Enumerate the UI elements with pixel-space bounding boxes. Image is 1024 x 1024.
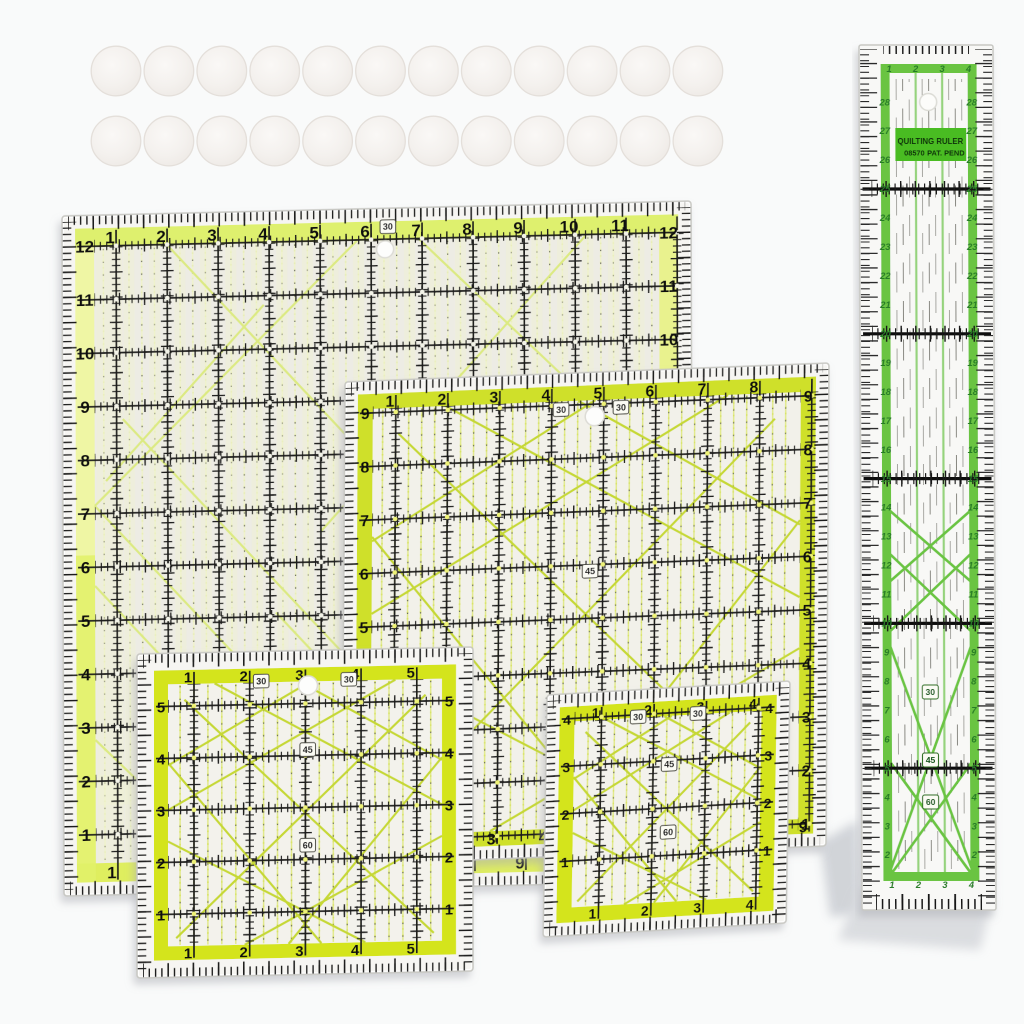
svg-text:4: 4	[541, 387, 550, 404]
svg-text:3: 3	[295, 943, 303, 960]
svg-text:11: 11	[611, 216, 629, 235]
svg-text:8: 8	[80, 451, 90, 470]
svg-text:2: 2	[641, 902, 649, 918]
svg-text:4: 4	[445, 745, 454, 762]
svg-text:30: 30	[925, 687, 935, 697]
svg-text:14: 14	[968, 503, 979, 514]
svg-text:25: 25	[879, 184, 891, 195]
svg-text:2: 2	[81, 772, 91, 791]
svg-text:28: 28	[878, 97, 890, 108]
svg-text:2: 2	[971, 850, 978, 861]
svg-text:60: 60	[663, 827, 673, 838]
svg-text:4: 4	[563, 712, 571, 728]
svg-text:8: 8	[803, 442, 812, 459]
svg-text:12: 12	[968, 561, 979, 572]
svg-text:4: 4	[351, 942, 360, 959]
svg-text:6: 6	[645, 383, 654, 400]
svg-text:16: 16	[881, 445, 892, 456]
svg-text:9: 9	[971, 648, 977, 659]
svg-text:2: 2	[562, 807, 570, 823]
svg-text:5: 5	[407, 665, 415, 682]
svg-text:20: 20	[966, 329, 978, 340]
svg-text:11: 11	[76, 291, 94, 310]
svg-text:18: 18	[880, 387, 891, 398]
svg-text:5: 5	[593, 385, 602, 402]
svg-text:12: 12	[881, 561, 892, 572]
svg-text:1: 1	[561, 854, 569, 870]
svg-text:45: 45	[664, 759, 674, 770]
svg-text:1: 1	[82, 826, 92, 845]
svg-text:26: 26	[966, 155, 978, 166]
svg-text:7: 7	[803, 496, 812, 513]
svg-text:9: 9	[804, 389, 813, 406]
svg-text:5: 5	[802, 603, 811, 620]
svg-text:18: 18	[967, 387, 978, 398]
svg-text:60: 60	[926, 797, 936, 807]
svg-text:12: 12	[659, 223, 678, 242]
svg-text:2: 2	[915, 880, 922, 891]
svg-text:PAT. PEND: PAT. PEND	[927, 149, 965, 158]
svg-text:17: 17	[968, 416, 979, 427]
svg-text:2: 2	[437, 391, 446, 408]
svg-text:4: 4	[970, 792, 977, 803]
svg-text:9: 9	[884, 648, 890, 659]
svg-text:22: 22	[879, 271, 891, 282]
svg-text:2: 2	[884, 850, 891, 861]
svg-text:7: 7	[360, 513, 369, 530]
svg-text:19: 19	[880, 358, 891, 369]
svg-text:4: 4	[765, 700, 773, 716]
svg-text:2: 2	[240, 944, 248, 961]
svg-text:10: 10	[881, 619, 892, 630]
svg-text:9: 9	[513, 219, 523, 238]
svg-text:27: 27	[965, 126, 977, 137]
svg-text:8: 8	[884, 677, 890, 688]
svg-text:2: 2	[157, 855, 165, 872]
svg-text:10: 10	[560, 217, 579, 236]
svg-text:1: 1	[592, 704, 600, 720]
svg-text:21: 21	[966, 300, 978, 311]
svg-text:30: 30	[693, 708, 703, 719]
svg-text:7: 7	[697, 381, 706, 398]
svg-text:5: 5	[157, 699, 165, 716]
svg-text:1: 1	[801, 817, 810, 834]
svg-text:8: 8	[749, 379, 758, 396]
svg-text:17: 17	[881, 416, 892, 427]
svg-text:6: 6	[971, 734, 977, 745]
svg-text:1: 1	[385, 393, 394, 410]
svg-text:22: 22	[966, 271, 978, 282]
svg-text:4: 4	[258, 225, 268, 244]
svg-text:9: 9	[80, 398, 90, 417]
svg-text:1: 1	[763, 842, 771, 858]
svg-text:60: 60	[303, 840, 313, 850]
svg-text:15: 15	[968, 474, 979, 485]
svg-text:4: 4	[968, 880, 975, 891]
svg-text:3: 3	[885, 821, 891, 832]
svg-text:3: 3	[207, 226, 217, 245]
svg-text:30: 30	[616, 402, 626, 412]
svg-text:15: 15	[881, 474, 892, 485]
svg-text:3: 3	[445, 797, 453, 814]
svg-text:5: 5	[309, 223, 319, 242]
svg-text:8: 8	[360, 460, 369, 477]
svg-text:23: 23	[966, 242, 978, 253]
svg-text:3: 3	[81, 719, 91, 738]
svg-text:7: 7	[884, 705, 890, 716]
svg-text:2: 2	[156, 227, 166, 246]
svg-text:7: 7	[411, 221, 421, 240]
svg-text:5: 5	[971, 763, 977, 774]
svg-text:1: 1	[107, 863, 117, 882]
svg-text:11: 11	[660, 277, 678, 296]
svg-text:1: 1	[105, 228, 115, 247]
svg-text:21: 21	[879, 300, 891, 311]
svg-text:5: 5	[445, 693, 453, 710]
svg-text:10: 10	[968, 619, 979, 630]
svg-text:25: 25	[966, 184, 978, 195]
svg-text:30: 30	[556, 405, 566, 415]
svg-text:5: 5	[884, 763, 890, 774]
svg-text:10: 10	[659, 330, 678, 349]
svg-text:4: 4	[802, 656, 811, 673]
svg-text:9: 9	[361, 406, 370, 423]
svg-text:7: 7	[971, 705, 977, 716]
svg-text:3: 3	[562, 759, 570, 775]
svg-text:20: 20	[879, 329, 891, 340]
svg-text:11: 11	[881, 590, 891, 601]
svg-text:14: 14	[881, 503, 892, 514]
svg-text:30: 30	[344, 674, 354, 684]
svg-text:3: 3	[157, 803, 165, 820]
svg-text:27: 27	[878, 126, 890, 137]
svg-text:3: 3	[693, 899, 701, 915]
svg-text:1: 1	[588, 905, 596, 921]
svg-text:QUILTING RULER: QUILTING RULER	[897, 137, 963, 146]
svg-text:08570: 08570	[904, 149, 925, 158]
svg-text:26: 26	[879, 155, 891, 166]
svg-text:3: 3	[939, 64, 945, 75]
svg-text:24: 24	[879, 213, 891, 224]
svg-text:3: 3	[972, 821, 978, 832]
svg-text:28: 28	[965, 97, 977, 108]
svg-text:24: 24	[966, 213, 978, 224]
svg-text:4: 4	[883, 792, 890, 803]
svg-text:11: 11	[968, 590, 978, 601]
svg-text:45: 45	[926, 755, 936, 765]
svg-text:4: 4	[749, 695, 757, 711]
svg-text:6: 6	[803, 549, 812, 566]
svg-text:16: 16	[968, 445, 979, 456]
svg-text:5: 5	[81, 612, 91, 631]
svg-text:3: 3	[764, 747, 772, 763]
svg-text:3: 3	[802, 710, 811, 727]
svg-text:2: 2	[764, 795, 772, 811]
svg-text:1: 1	[184, 945, 192, 962]
svg-text:6: 6	[884, 734, 890, 745]
svg-text:3: 3	[489, 389, 498, 406]
svg-text:7: 7	[81, 505, 91, 524]
svg-text:1: 1	[157, 907, 165, 924]
svg-text:8: 8	[462, 220, 472, 239]
svg-text:10: 10	[75, 344, 94, 363]
svg-text:2: 2	[445, 849, 453, 866]
svg-text:5: 5	[407, 941, 415, 958]
svg-text:30: 30	[633, 712, 643, 723]
svg-text:4: 4	[965, 64, 972, 75]
svg-text:4: 4	[157, 751, 166, 768]
svg-text:1: 1	[886, 64, 891, 75]
svg-text:23: 23	[879, 242, 891, 253]
svg-text:45: 45	[585, 566, 595, 576]
svg-text:1: 1	[184, 669, 192, 686]
svg-text:13: 13	[881, 532, 892, 543]
svg-text:6: 6	[360, 222, 370, 241]
svg-text:1: 1	[889, 880, 894, 891]
svg-text:6: 6	[81, 558, 91, 577]
svg-text:6: 6	[360, 567, 369, 584]
svg-text:3: 3	[942, 880, 948, 891]
svg-text:30: 30	[383, 222, 393, 232]
svg-text:12: 12	[75, 237, 94, 256]
svg-text:3: 3	[487, 831, 496, 848]
svg-text:45: 45	[303, 745, 313, 755]
svg-text:5: 5	[359, 620, 368, 637]
svg-text:2: 2	[912, 64, 919, 75]
svg-text:4: 4	[81, 665, 91, 684]
svg-text:19: 19	[967, 358, 978, 369]
svg-text:2: 2	[240, 668, 248, 685]
svg-text:1: 1	[445, 901, 453, 918]
svg-text:13: 13	[968, 532, 979, 543]
svg-text:30: 30	[256, 676, 266, 686]
svg-text:4: 4	[746, 896, 754, 912]
svg-text:2: 2	[801, 763, 810, 780]
svg-text:8: 8	[971, 677, 977, 688]
